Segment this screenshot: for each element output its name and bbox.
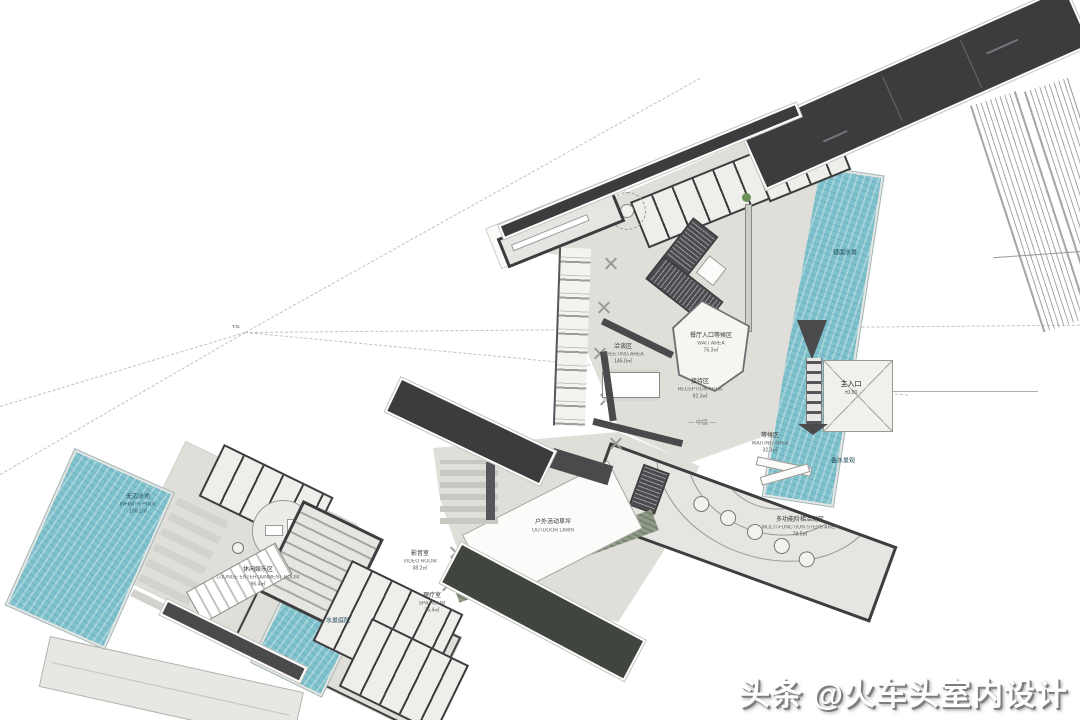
label-line: MULTI-FUNCTION STEPS AREA	[762, 525, 838, 531]
room-label-steps-hall: 多功能阶梯活动区 MULTI-FUNCTION STEPS AREA 78.5㎡	[755, 517, 845, 540]
label-line: 餐厅入口等候区	[690, 333, 732, 341]
label-line: 理疗室	[416, 593, 448, 601]
label-line: INFINITY POOL	[120, 502, 157, 508]
label-line: WAIT AREA	[693, 341, 729, 347]
booth-seating-strip	[553, 247, 591, 426]
label-line: 等候区	[748, 433, 791, 441]
label-line: RECEPTION AREA	[678, 387, 723, 393]
dining-table-icon	[596, 300, 611, 315]
room-label-waiting: 等候区 WAITING AREA 32.3㎡	[748, 433, 791, 456]
roof-partition-line	[882, 77, 902, 121]
dimension-line	[888, 391, 1038, 392]
label-line: 26.4㎡	[419, 608, 446, 614]
label-line: 镜面水景	[833, 250, 857, 258]
label-line: 32.3㎡	[752, 448, 789, 454]
label-line: SPA ROOM	[419, 601, 446, 607]
roof-partition-line	[960, 40, 982, 88]
room-label-av: 影音室 VIDEO ROOM 38.2㎡	[400, 551, 439, 574]
dining-table-icon	[608, 436, 623, 451]
stair-flight	[629, 464, 670, 515]
entrance-bridge	[806, 358, 822, 424]
label-line: 影音室	[400, 551, 439, 559]
room-label-reception: 接待区 RECEPTION AREA 92.3㎡	[674, 379, 727, 402]
room-label-spa: 理疗室 SPA ROOM 26.4㎡	[416, 593, 448, 616]
entrance-arrow-icon	[797, 320, 827, 360]
entrance-arrow-icon-small	[798, 424, 828, 435]
roof-mark	[823, 130, 848, 142]
label-line: 92.3㎡	[678, 394, 723, 400]
label-line: 145.0㎡	[602, 359, 644, 365]
kitchen-block	[440, 460, 498, 524]
watermark: 头条 @火车头室内设计	[739, 669, 1068, 714]
label-line: 75.3㎡	[693, 348, 729, 354]
label-line: 洽谈区	[598, 344, 647, 352]
sight-point-label: T.N.	[232, 325, 241, 330]
room-label-cascade: 叠水景观	[831, 458, 855, 466]
label-line: 接待区	[674, 379, 727, 387]
roof-mark	[986, 39, 1018, 55]
round-table	[232, 542, 244, 554]
floor-plan-canvas: T.N. 镜面水景 叠水景观	[0, 0, 1080, 720]
label-line: 96.4㎡	[216, 582, 299, 588]
label-line: 150.2㎡	[120, 509, 157, 515]
kitchen-counter	[486, 462, 495, 520]
label-line: 无边泳池	[116, 494, 159, 502]
label-line: GREETING AREA	[602, 352, 644, 358]
label-line: 休闲娱乐区	[209, 567, 307, 575]
room-label-lawn: 户外活动草坪 OUTDOOR LAWN	[528, 520, 577, 535]
deck-line	[51, 662, 289, 716]
label-line: ±0.00	[842, 390, 860, 396]
label-line: — 中庭 —	[688, 420, 715, 428]
label-line: 38.2㎡	[403, 566, 436, 572]
label-line: 78.5㎡	[762, 532, 838, 538]
label-line: 叠水景观	[831, 458, 855, 466]
infinity-pool	[8, 452, 171, 646]
room-label-atrium: — 中庭 —	[688, 420, 715, 428]
room-label-mirror-water: 镜面水景	[833, 250, 857, 258]
room-label-lounge: 休闲娱乐区 LOUNGE ENTERTAINMENT ROOM 96.4㎡	[209, 567, 307, 590]
label-line: WAITING AREA	[752, 441, 789, 447]
label-line: 户外活动草坪	[528, 520, 577, 528]
room-label-water-court: 水景庭院	[326, 618, 350, 626]
label-line: 主入口	[841, 381, 862, 390]
pavilion-sofa	[265, 525, 283, 536]
sight-line	[0, 332, 245, 407]
label-line: 多功能阶梯活动区	[755, 517, 845, 525]
dining-table-icon	[603, 256, 618, 271]
label-line: LOUNGE ENTERTAINMENT ROOM	[216, 575, 299, 581]
room-label-pool: 无边泳池 INFINITY POOL 150.2㎡	[116, 494, 159, 517]
room-label-greeting: 洽谈区 GREETING AREA 145.0㎡	[598, 344, 647, 367]
tree-icon	[742, 193, 751, 202]
label-line: VIDEO ROOM	[403, 559, 436, 565]
room-label-entrance: 主入口 ±0.00	[841, 381, 862, 397]
label-line: 水景庭院	[326, 618, 350, 626]
label-line: OUTDOOR LAWN	[532, 528, 574, 534]
room-label-wait: 餐厅入口等候区 WAIT AREA 75.3㎡	[690, 333, 732, 356]
